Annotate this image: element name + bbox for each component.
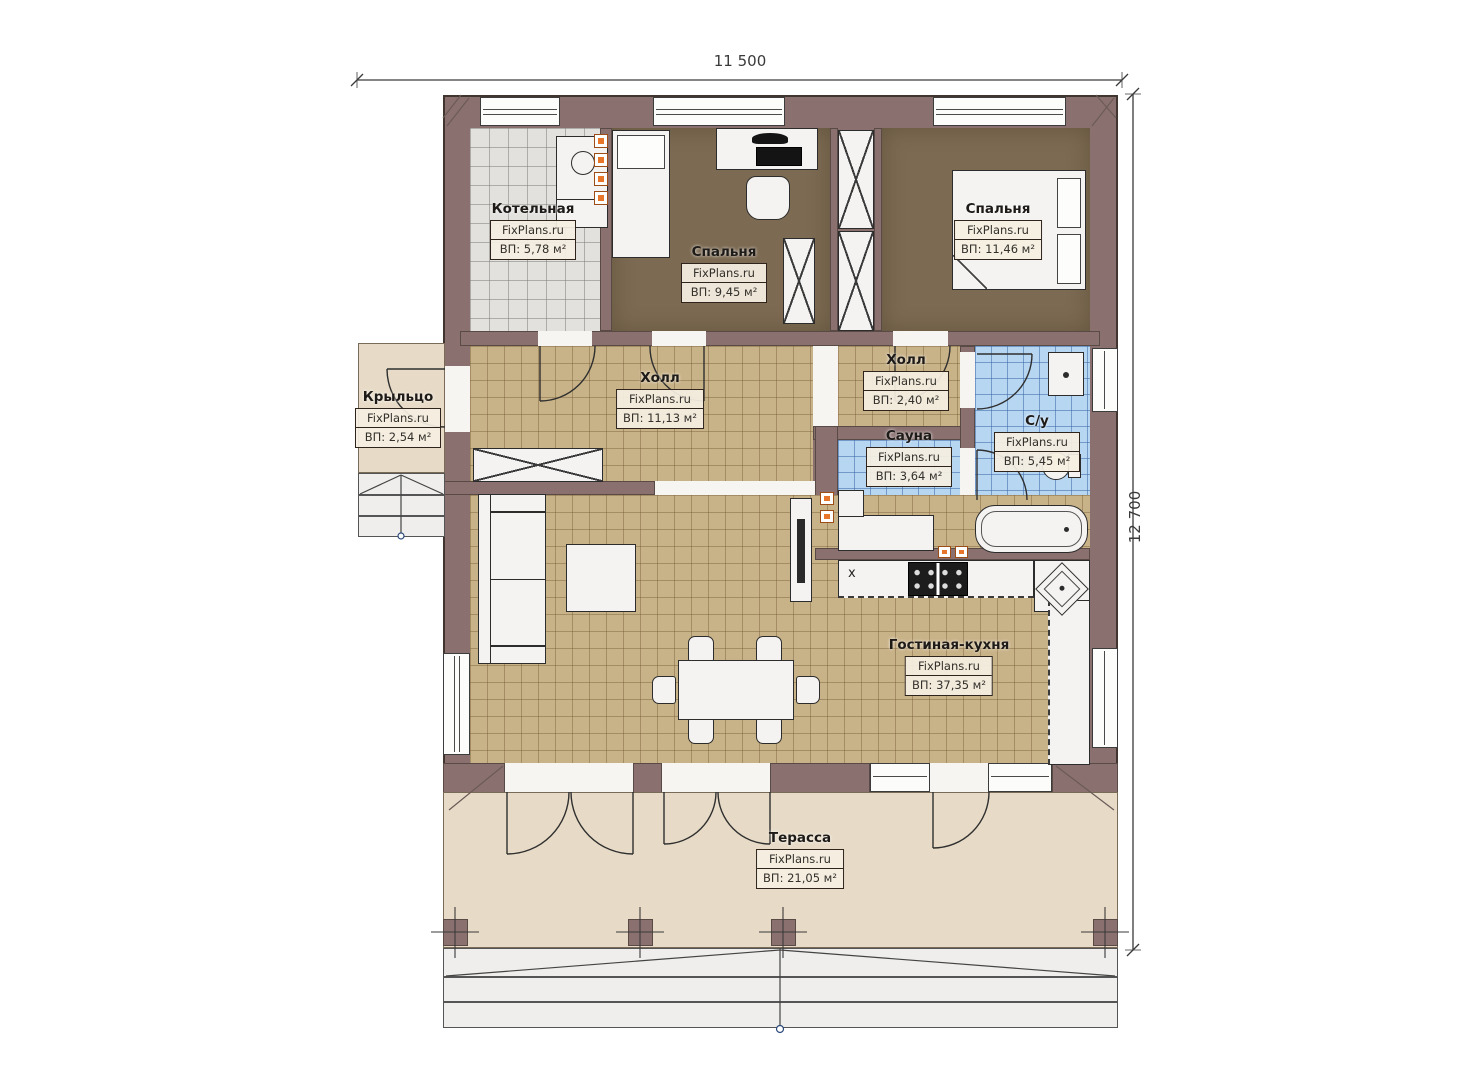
bedroom2-door-opening xyxy=(893,331,948,346)
room-brand: FixPlans.ru xyxy=(356,409,440,428)
terrace-column-3 xyxy=(771,919,796,946)
room-info-box: FixPlans.ru ВП: 11,13 м² xyxy=(616,389,704,429)
window-terrace-2 xyxy=(988,763,1052,792)
terrace-step-2 xyxy=(443,977,1118,1002)
window-bathroom xyxy=(1092,348,1118,412)
dining-chair xyxy=(796,676,820,704)
room-name: Холл xyxy=(863,352,949,368)
room-info-box: FixPlans.ru ВП: 5,45 м² xyxy=(994,432,1080,472)
tv-console xyxy=(790,498,812,602)
terrace-column-2 xyxy=(628,919,653,946)
hall-living-passage xyxy=(655,481,815,495)
terrace-step-1 xyxy=(443,948,1118,977)
bathtub-drain-icon xyxy=(1064,527,1069,532)
vent-icon xyxy=(938,546,951,558)
room-brand: FixPlans.ru xyxy=(757,850,843,869)
room-label-holl2: Холл FixPlans.ru ВП: 2,40 м² xyxy=(863,352,949,411)
sofa-cushion-divider xyxy=(491,579,545,580)
sofa-seat xyxy=(490,512,546,646)
room-area: ВП: 37,35 м² xyxy=(906,676,992,695)
room-name: Холл xyxy=(616,370,704,386)
room-info-box: FixPlans.ru ВП: 11,46 м² xyxy=(954,220,1042,260)
dimension-height-label: 12 700 xyxy=(1126,472,1144,562)
terrace-door-opening xyxy=(930,763,988,792)
bed-pillow xyxy=(617,135,665,169)
room-brand: FixPlans.ru xyxy=(955,221,1041,240)
hall-passage-opening xyxy=(813,346,838,426)
room-name: Котельная xyxy=(490,201,576,217)
room-area: ВП: 21,05 м² xyxy=(757,869,843,888)
room-area: ВП: 5,78 м² xyxy=(491,240,575,259)
sofa-armrest-top xyxy=(490,494,546,512)
room-area: ВП: 9,45 м² xyxy=(682,283,766,302)
room-name: Гостиная-кухня xyxy=(889,637,1010,653)
vent-icon xyxy=(594,191,608,205)
room-info-box: FixPlans.ru ВП: 9,45 м² xyxy=(681,263,767,303)
laptop-icon xyxy=(756,147,802,166)
window-bedroom2 xyxy=(933,97,1066,126)
room-info-box: FixPlans.ru ВП: 37,35 м² xyxy=(905,656,993,696)
bathroom-door-opening xyxy=(960,352,975,408)
kitchen-cross-marker: x xyxy=(848,566,856,581)
vent-icon xyxy=(820,492,834,505)
french-door-a-opening xyxy=(505,763,633,792)
dining-chair xyxy=(688,636,714,662)
bed-pillow xyxy=(1057,178,1081,228)
bathtub xyxy=(975,505,1088,553)
window-terrace-1 xyxy=(870,763,930,792)
sauna-bench xyxy=(838,515,934,551)
room-label-terrassa: Терасса FixPlans.ru ВП: 21,05 м² xyxy=(756,830,844,889)
room-name: Терасса xyxy=(756,830,844,846)
room-info-box: FixPlans.ru ВП: 2,40 м² xyxy=(863,371,949,411)
room-name: Сауна xyxy=(866,428,952,444)
built-in-wardrobe-lower xyxy=(838,231,874,331)
room-label-sauna: Сауна FixPlans.ru ВП: 3,64 м² xyxy=(866,428,952,487)
porch-step-2 xyxy=(358,495,445,516)
room-label-spalnya1: Спальня FixPlans.ru ВП: 9,45 м² xyxy=(681,244,767,303)
room-label-kotelnaya: Котельная FixPlans.ru ВП: 5,78 м² xyxy=(490,201,576,260)
coffee-table xyxy=(566,544,636,612)
room-area: ВП: 3,64 м² xyxy=(867,467,951,486)
dimension-width-label: 11 500 xyxy=(700,52,780,70)
dining-chair xyxy=(756,718,782,744)
wall-wardrobe-left xyxy=(830,128,838,331)
sofa-armrest-bottom xyxy=(490,646,546,664)
vent-icon xyxy=(594,172,608,186)
room-label-gostinaya: Гостиная-кухня FixPlans.ru ВП: 37,35 м² xyxy=(889,637,1010,696)
sink-drain-icon xyxy=(1063,372,1069,378)
dining-table xyxy=(678,660,794,720)
room-name: Спальня xyxy=(954,201,1042,217)
boiler-door-opening xyxy=(538,331,592,346)
room-label-su: С/у FixPlans.ru ВП: 5,45 м² xyxy=(994,413,1080,472)
room-brand: FixPlans.ru xyxy=(617,390,703,409)
room-brand: FixPlans.ru xyxy=(864,372,948,391)
room-brand: FixPlans.ru xyxy=(867,448,951,467)
bathroom-sink xyxy=(1048,352,1084,396)
room-brand: FixPlans.ru xyxy=(995,433,1079,452)
room-brand: FixPlans.ru xyxy=(682,264,766,283)
window-living-left xyxy=(443,653,470,755)
porch-step-1 xyxy=(358,473,445,495)
dining-chair xyxy=(688,718,714,744)
floor-plan-canvas: 11 500 12 700 xyxy=(0,0,1473,1080)
room-brand: FixPlans.ru xyxy=(906,657,992,676)
tv-icon xyxy=(797,519,805,583)
bed-pillow xyxy=(1057,234,1081,284)
porch-step-3 xyxy=(358,516,445,537)
terrace-column-4 xyxy=(1093,919,1118,946)
room-name: Крыльцо xyxy=(355,389,441,405)
desk-chair xyxy=(746,176,790,220)
french-door-b-opening xyxy=(662,763,770,792)
dining-chair xyxy=(652,676,676,704)
room-area: ВП: 5,45 м² xyxy=(995,452,1079,471)
bedroom1-wardrobe xyxy=(783,238,815,324)
desk-lamp-icon xyxy=(752,133,788,144)
vent-icon xyxy=(594,153,608,167)
vent-icon xyxy=(955,546,968,558)
built-in-wardrobe-upper xyxy=(838,130,874,229)
sauna-bench-step xyxy=(838,490,864,517)
window-bedroom1 xyxy=(653,97,785,126)
dining-chair xyxy=(756,636,782,662)
room-info-box: FixPlans.ru ВП: 21,05 м² xyxy=(756,849,844,889)
boiler-dial-icon xyxy=(571,151,595,175)
room-label-holl1: Холл FixPlans.ru ВП: 11,13 м² xyxy=(616,370,704,429)
room-info-box: FixPlans.ru ВП: 3,64 м² xyxy=(866,447,952,487)
room-area: ВП: 11,13 м² xyxy=(617,409,703,428)
room-info-box: FixPlans.ru ВП: 5,78 м² xyxy=(490,220,576,260)
kitchen-counter-right xyxy=(1048,600,1090,765)
room-label-kryltso: Крыльцо FixPlans.ru ВП: 2,54 м² xyxy=(355,389,441,448)
hall-wardrobe xyxy=(473,448,603,482)
room-label-spalnya2: Спальня FixPlans.ru ВП: 11,46 м² xyxy=(954,201,1042,260)
vent-icon xyxy=(594,134,608,148)
window-boiler xyxy=(480,97,560,126)
blanket-fold xyxy=(953,255,987,289)
terrace-step-3 xyxy=(443,1002,1118,1028)
terrace-column-1 xyxy=(443,919,468,946)
room-name: Спальня xyxy=(681,244,767,260)
entrance-door-opening xyxy=(443,366,470,432)
room-area: ВП: 2,54 м² xyxy=(356,428,440,447)
room-brand: FixPlans.ru xyxy=(491,221,575,240)
room-name: С/у xyxy=(994,413,1080,429)
vent-icon xyxy=(820,510,834,523)
bedroom1-door-opening xyxy=(652,331,706,346)
room-info-box: FixPlans.ru ВП: 2,54 м² xyxy=(355,408,441,448)
room-area: ВП: 11,46 м² xyxy=(955,240,1041,259)
stove-icon xyxy=(908,562,968,596)
wall-wardrobe-right xyxy=(874,128,882,331)
wall-hall-living xyxy=(443,481,655,495)
single-bed xyxy=(612,130,670,258)
window-kitchen-right xyxy=(1092,648,1118,748)
room-area: ВП: 2,40 м² xyxy=(864,391,948,410)
